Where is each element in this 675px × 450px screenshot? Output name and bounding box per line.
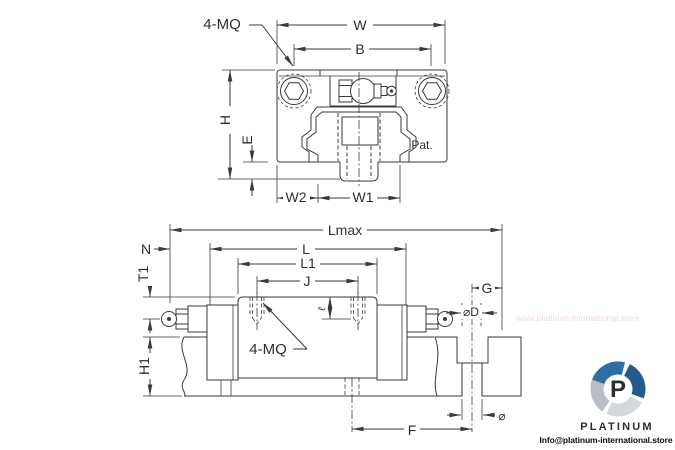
dim-label-B: B: [355, 41, 364, 57]
dim-label-L1: L1: [300, 255, 316, 271]
dim-bolt-dia: ⌀: [447, 399, 506, 423]
dim-label-N: N: [141, 241, 151, 257]
dim-label-G: G: [482, 280, 493, 296]
dim-D: ⌀D: [446, 303, 497, 326]
screw-note-side: 4-MQ: [249, 341, 287, 358]
dim-label-H1: H1: [136, 357, 152, 375]
drawing-canvas: W B 4-MQ H E: [0, 0, 675, 450]
dim-label-Lmax: Lmax: [328, 222, 362, 238]
dim-label-W1: W1: [353, 189, 374, 205]
logo-swirl-right: [627, 370, 639, 396]
dim-label-D: ⌀D: [463, 305, 479, 319]
dim-E: E: [239, 135, 268, 196]
dim-J: J: [257, 273, 358, 294]
screw-callout-top: 4-MQ: [203, 16, 293, 66]
dim-W2-W1: W2 W1: [277, 165, 400, 206]
dim-H1: H1: [136, 337, 182, 396]
grease-nipple-side-left: [162, 306, 208, 332]
side-view: Lmax L N L1 J: [135, 221, 521, 438]
logo-monogram: P: [610, 376, 626, 403]
front-view: W B 4-MQ H E: [203, 16, 449, 206]
watermark: www.platinum-international.store P PLATI…: [516, 313, 673, 445]
grease-nipple-side-right: [407, 306, 453, 332]
contact-email: Info@platinum-international.store: [540, 435, 673, 445]
platinum-logo: P: [597, 368, 639, 410]
watermark-url: www.platinum-international.store: [516, 313, 640, 323]
dim-label-W2: W2: [286, 189, 307, 205]
dim-label-H: H: [217, 115, 233, 125]
dim-G: G: [472, 280, 502, 296]
hex-screw-right: [415, 74, 449, 108]
brand-name: PLATINUM: [580, 421, 654, 433]
dim-label-T1: T1: [135, 266, 151, 283]
dim-N: N: [141, 241, 170, 257]
dim-label-E: E: [239, 135, 255, 144]
dim-label-F: F: [408, 422, 417, 438]
dim-label-dia: ⌀: [498, 409, 505, 423]
logo-swirl-left: [597, 382, 606, 406]
carriage-side: [207, 297, 407, 432]
screw-note-top: 4-MQ: [203, 16, 241, 33]
hex-screw-left: [277, 74, 311, 108]
patent-note: Pat.: [411, 138, 432, 152]
dim-F: F: [352, 421, 472, 438]
dim-label-J: J: [304, 273, 311, 289]
grease-nipple-front: [339, 79, 396, 104]
technical-drawing-page: W B 4-MQ H E: [0, 0, 675, 450]
dim-B: B: [294, 40, 431, 66]
dim-label-W: W: [353, 17, 367, 33]
